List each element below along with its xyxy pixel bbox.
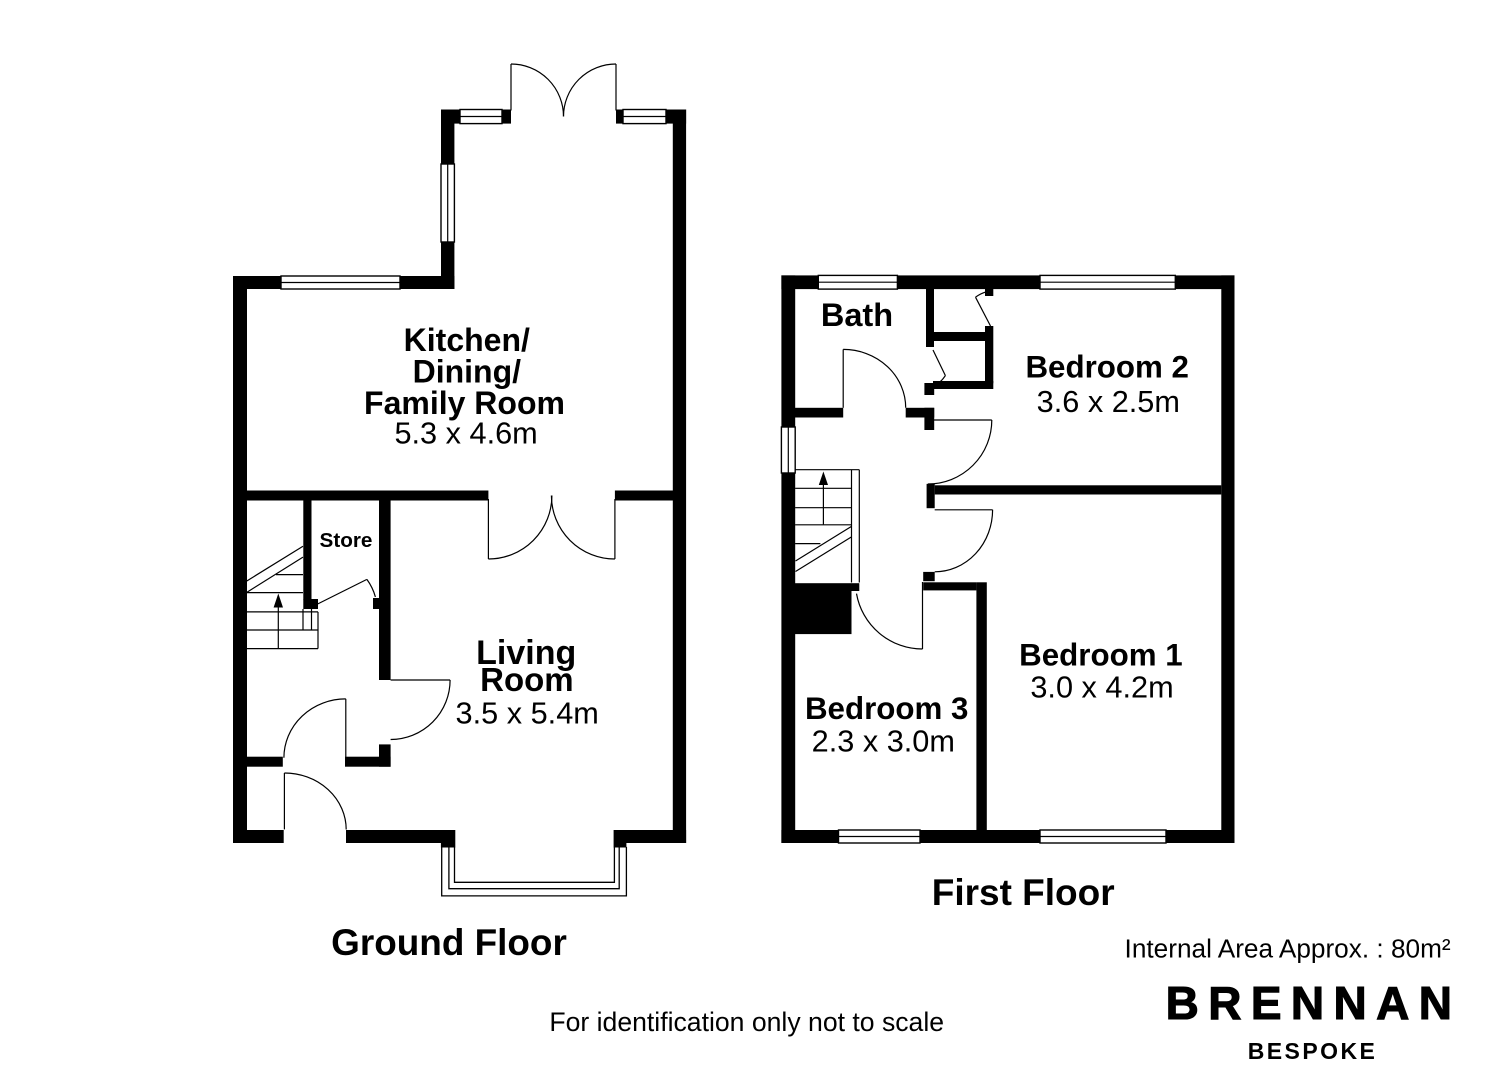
- svg-text:For identification only not to: For identification only not to scale: [549, 1007, 944, 1037]
- svg-text:First Floor: First Floor: [932, 872, 1115, 913]
- svg-text:2.3 x 3.0m: 2.3 x 3.0m: [812, 723, 955, 758]
- svg-text:Bedroom 3: Bedroom 3: [805, 691, 968, 726]
- svg-text:BRENNAN: BRENNAN: [1166, 977, 1462, 1029]
- svg-text:Bath: Bath: [821, 297, 893, 333]
- svg-text:Kitchen/: Kitchen/: [404, 322, 530, 358]
- svg-text:Internal Area Approx. : 80m²: Internal Area Approx. : 80m²: [1125, 933, 1451, 963]
- svg-text:3.5 x 5.4m: 3.5 x 5.4m: [456, 696, 599, 731]
- svg-text:5.3 x 4.6m: 5.3 x 4.6m: [394, 416, 537, 451]
- svg-text:3.6 x 2.5m: 3.6 x 2.5m: [1037, 384, 1180, 419]
- svg-text:Store: Store: [320, 529, 373, 552]
- svg-text:BESPOKE: BESPOKE: [1248, 1038, 1378, 1064]
- svg-text:Bedroom 1: Bedroom 1: [1019, 638, 1182, 673]
- svg-text:3.0 x 4.2m: 3.0 x 4.2m: [1030, 670, 1173, 705]
- svg-text:Room: Room: [480, 661, 574, 698]
- svg-text:Bedroom 2: Bedroom 2: [1025, 350, 1188, 385]
- svg-text:Ground Floor: Ground Floor: [331, 922, 567, 963]
